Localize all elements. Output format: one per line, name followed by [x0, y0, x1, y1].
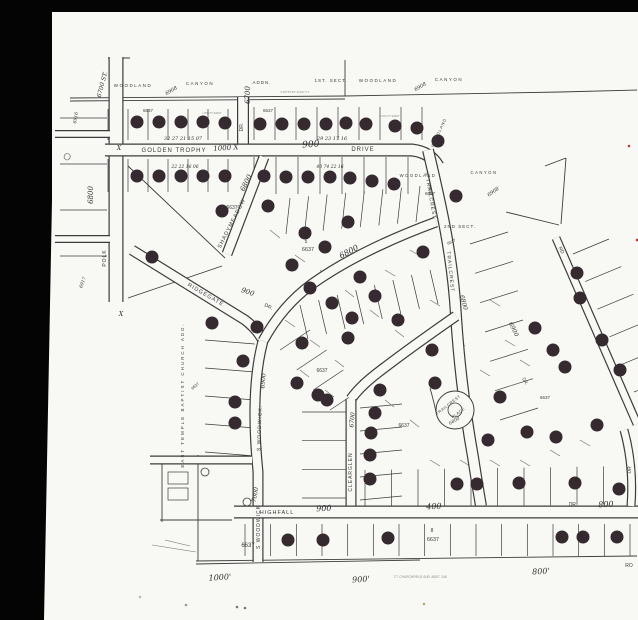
lot-marker-dot — [611, 531, 624, 544]
map-label: 22 22 16 06 — [170, 164, 198, 170]
lot-marker-dot — [577, 531, 590, 544]
lot-marker-dot — [237, 355, 250, 368]
lot-marker-dot — [229, 396, 242, 409]
lot-marker-dot — [254, 118, 267, 131]
lot-marker-dot — [286, 259, 299, 272]
map-label: DR — [627, 466, 634, 474]
lot-marker-dot — [262, 200, 275, 213]
map-label: 6900 — [259, 373, 267, 389]
lot-marker-dot — [175, 170, 188, 183]
lot-marker-dot — [342, 332, 355, 345]
lot-marker-dot — [296, 337, 309, 350]
map-label: 6637 — [241, 543, 255, 549]
map-label: 900' — [352, 575, 370, 585]
lot-marker-dot — [382, 532, 395, 545]
map-label: X — [118, 311, 124, 318]
lot-marker-dot — [388, 178, 401, 191]
map-label: RO — [625, 563, 633, 569]
scan-speck — [628, 145, 631, 148]
lot-marker-dot — [354, 271, 367, 284]
map-label: DRIVE — [351, 147, 374, 153]
lot-marker-dot — [614, 364, 627, 377]
map-label: CLEARGLEN — [348, 452, 354, 491]
lot-marker-dot — [571, 267, 584, 280]
lot-marker-dot — [482, 434, 495, 447]
lot-marker-dot — [197, 170, 210, 183]
lot-marker-dot — [251, 321, 264, 334]
lot-marker-dot — [417, 246, 430, 259]
lot-marker-dot — [146, 251, 159, 264]
lot-marker-dot — [411, 122, 424, 135]
map-label: WOODLAND — [114, 83, 153, 88]
map-label: DR. — [239, 123, 245, 132]
lot-marker-dot — [550, 431, 563, 444]
lot-marker-dot — [317, 534, 330, 547]
map-label: 6700 — [244, 86, 252, 104]
map-label: 8 — [431, 528, 434, 534]
map-label: 6800 — [87, 186, 95, 204]
map-label: 6700 — [348, 412, 356, 428]
lot-marker-dot — [494, 391, 507, 404]
lot-marker-dot — [304, 282, 317, 295]
lot-marker-dot — [291, 377, 304, 390]
map-label: 40 74 22 16 — [315, 164, 343, 170]
map-label: ADDN. — [252, 80, 271, 85]
scan-speck — [244, 607, 247, 610]
lot-marker-dot — [369, 290, 382, 303]
map-label: GOLDEN TROPHY — [142, 148, 207, 154]
map-label: 1000' — [208, 572, 231, 582]
map-label: 400 — [425, 502, 442, 512]
lot-marker-dot — [364, 473, 377, 486]
map-label: 2ND SECT. — [444, 224, 476, 229]
map-label: CANYON — [435, 77, 463, 82]
map-label: HIGHFALL — [260, 510, 295, 516]
lot-marker-dot — [556, 531, 569, 544]
lot-marker-dot — [302, 171, 315, 184]
lot-marker-dot — [258, 170, 271, 183]
lot-marker-dot — [365, 427, 378, 440]
lot-marker-dot — [153, 116, 166, 129]
lot-marker-dot — [219, 170, 232, 183]
map-label: 6637 — [226, 205, 237, 211]
lot-marker-dot — [559, 361, 572, 374]
map-label: T.T. CHURCHFIELD SUR. ABST. 248 — [394, 575, 447, 579]
lot-marker-dot — [344, 172, 357, 185]
lot-marker-dot — [429, 377, 442, 390]
map-label: 29 23 17 16 — [316, 136, 348, 142]
lot-marker-dot — [513, 477, 526, 490]
map-label: 6637 — [427, 537, 439, 543]
map-label: DR. — [569, 502, 578, 508]
lot-marker-dot — [451, 478, 464, 491]
map-label: 5 — [305, 239, 308, 245]
lot-marker-dot — [131, 170, 144, 183]
map-label: WOODLAND — [400, 173, 437, 178]
map-label: POLK — [102, 249, 108, 266]
lot-marker-dot — [574, 292, 587, 305]
lot-marker-dot — [529, 322, 542, 335]
lot-marker-dot — [389, 120, 402, 133]
lot-marker-dot — [319, 241, 332, 254]
map-label: 6637 — [143, 108, 154, 113]
lot-marker-dot — [206, 317, 219, 330]
lot-marker-dot — [175, 116, 188, 129]
lot-marker-dot — [450, 190, 463, 203]
plat-map: WOODLANDCANYON6908ADDN.1ST. SECT.WOODLAN… — [0, 0, 638, 620]
map-label: UTILITY ESMT — [381, 114, 400, 118]
lot-marker-dot — [298, 118, 311, 131]
lot-marker-dot — [547, 344, 560, 357]
lot-marker-dot — [219, 117, 232, 130]
lot-marker-dot — [326, 297, 339, 310]
lot-marker-dot — [369, 407, 382, 420]
scan-speck — [423, 603, 426, 606]
lot-marker-dot — [324, 171, 337, 184]
map-label: 6637 — [540, 395, 551, 400]
lot-marker-dot — [276, 118, 289, 131]
lot-marker-dot — [569, 477, 582, 490]
lot-marker-dot — [299, 227, 312, 240]
lot-marker-dot — [280, 171, 293, 184]
lot-marker-dot — [426, 344, 439, 357]
map-label: UTILITY ESMT — [203, 111, 222, 115]
plat-map-svg: WOODLANDCANYON6908ADDN.1ST. SECT.WOODLAN… — [0, 0, 638, 620]
lot-marker-dot — [364, 449, 377, 462]
map-label: 800' — [532, 567, 550, 577]
lot-marker-dot — [374, 384, 387, 397]
map-label: WOODLAND — [359, 78, 398, 83]
lot-marker-dot — [131, 116, 144, 129]
map-label: CANYON — [471, 170, 498, 175]
lot-marker-dot — [596, 334, 609, 347]
lot-marker-dot — [340, 117, 353, 130]
map-label: S 89°57'30" E 847 FT. — [280, 90, 310, 94]
map-label: CANYON — [186, 81, 214, 86]
lot-marker-dot — [153, 170, 166, 183]
lot-marker-dot — [320, 118, 333, 131]
map-label: 32 27 21 15 07 — [164, 136, 203, 142]
lot-marker-dot — [471, 478, 484, 491]
lot-marker-dot — [346, 312, 359, 325]
scan-speck — [236, 606, 239, 609]
scan-speck — [185, 604, 188, 607]
map-label: 6637 — [316, 368, 327, 374]
map-label: 6637 — [302, 247, 314, 253]
lot-marker-dot — [591, 419, 604, 432]
lot-marker-dot — [342, 216, 355, 229]
lot-marker-dot — [197, 116, 210, 129]
lot-marker-dot — [360, 118, 373, 131]
map-label: 6637 — [398, 423, 409, 429]
lot-marker-dot — [229, 417, 242, 430]
map-label: 900 — [316, 504, 332, 514]
lot-marker-dot — [321, 394, 334, 407]
map-label: X — [116, 145, 122, 152]
lot-marker-dot — [521, 426, 534, 439]
lot-marker-dot — [282, 534, 295, 547]
lot-marker-dot — [366, 175, 379, 188]
map-label: EAST TEMPLE BAPTIST CHURCH ADD. — [180, 322, 185, 467]
scan-speck — [139, 596, 142, 599]
lot-marker-dot — [392, 314, 405, 327]
map-label: 6637 — [263, 108, 274, 113]
lot-marker-dot — [613, 483, 626, 496]
map-label: 800 — [598, 500, 614, 510]
map-label: 1ST. SECT. — [314, 78, 347, 83]
